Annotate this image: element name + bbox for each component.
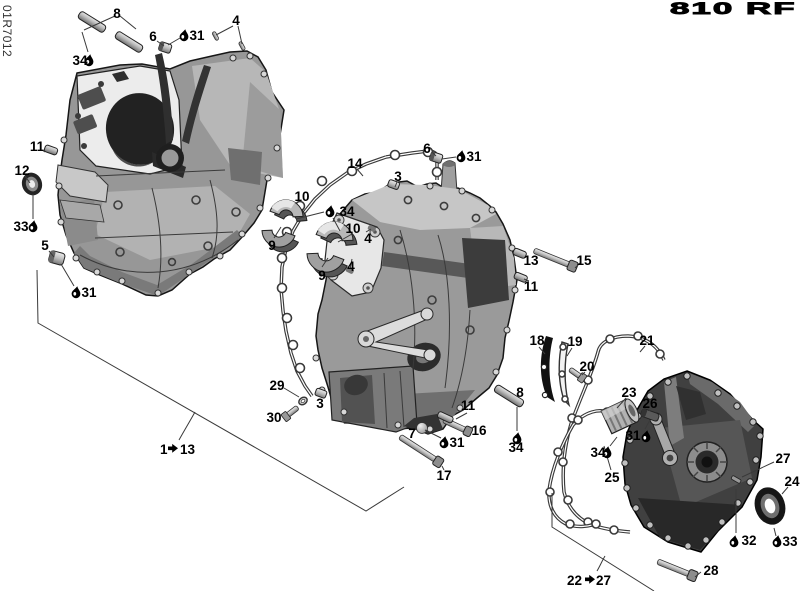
- svg-text:10: 10: [345, 221, 360, 236]
- svg-text:31: 31: [81, 285, 97, 300]
- svg-text:20: 20: [579, 359, 594, 374]
- svg-text:8: 8: [516, 385, 524, 400]
- svg-text:4: 4: [232, 13, 240, 28]
- svg-text:17: 17: [436, 468, 451, 483]
- svg-text:31: 31: [189, 28, 205, 43]
- svg-text:22: 22: [567, 573, 582, 588]
- svg-text:6: 6: [423, 141, 431, 156]
- svg-text:31: 31: [466, 149, 482, 164]
- svg-text:9: 9: [318, 268, 326, 283]
- svg-text:31: 31: [625, 428, 641, 443]
- svg-text:11: 11: [524, 279, 539, 294]
- svg-text:34: 34: [508, 440, 524, 455]
- svg-text:4: 4: [364, 231, 372, 246]
- svg-text:01R7012: 01R7012: [0, 5, 14, 57]
- svg-text:27: 27: [596, 573, 611, 588]
- svg-text:33: 33: [13, 219, 29, 234]
- svg-text:30: 30: [266, 410, 281, 425]
- svg-text:16: 16: [471, 423, 487, 438]
- svg-text:8: 8: [113, 6, 121, 21]
- svg-text:27: 27: [775, 451, 790, 466]
- svg-text:11: 11: [30, 139, 45, 154]
- svg-text:5: 5: [41, 238, 49, 253]
- svg-text:21: 21: [639, 333, 655, 348]
- svg-text:12: 12: [14, 163, 29, 178]
- svg-text:28: 28: [703, 563, 719, 578]
- svg-text:13: 13: [523, 253, 539, 268]
- svg-text:25: 25: [604, 470, 620, 485]
- svg-text:19: 19: [567, 334, 582, 349]
- svg-text:14: 14: [347, 156, 363, 171]
- svg-text:18: 18: [529, 333, 545, 348]
- svg-text:15: 15: [576, 253, 592, 268]
- svg-text:7: 7: [408, 426, 416, 441]
- svg-text:24: 24: [784, 474, 800, 489]
- svg-text:3: 3: [316, 396, 324, 411]
- svg-text:32: 32: [741, 533, 756, 548]
- svg-text:23: 23: [621, 385, 637, 400]
- svg-text:34: 34: [72, 53, 88, 68]
- svg-text:13: 13: [180, 442, 196, 457]
- svg-text:9: 9: [268, 238, 276, 253]
- svg-text:3: 3: [394, 169, 402, 184]
- svg-text:29: 29: [269, 378, 284, 393]
- svg-text:4: 4: [347, 259, 355, 274]
- svg-text:31: 31: [449, 435, 465, 450]
- svg-text:6: 6: [149, 29, 157, 44]
- svg-text:34: 34: [339, 204, 355, 219]
- svg-text:26: 26: [642, 396, 658, 411]
- svg-text:810 RF: 810 RF: [670, 0, 797, 18]
- svg-text:10: 10: [294, 189, 309, 204]
- svg-text:11: 11: [461, 398, 476, 413]
- svg-text:34: 34: [590, 445, 606, 460]
- svg-text:1: 1: [160, 442, 168, 457]
- svg-text:33: 33: [782, 534, 798, 549]
